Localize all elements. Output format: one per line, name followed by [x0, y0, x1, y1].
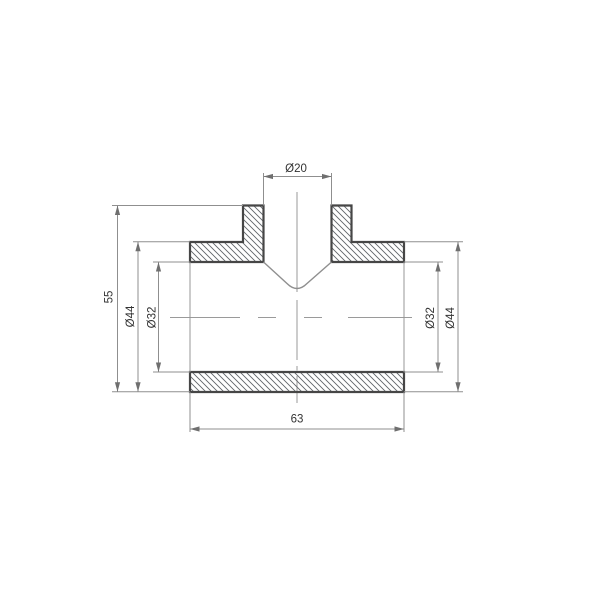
dim-label-body-length: 63	[291, 414, 304, 426]
arrow-down-icon	[135, 382, 140, 392]
right-top-wall-section	[332, 206, 405, 263]
extension-line-set	[112, 173, 463, 432]
arrow-down-icon	[115, 382, 120, 392]
arrow-down-icon	[435, 363, 440, 373]
arrow-left-icon	[264, 174, 274, 179]
arrow-up-icon	[156, 262, 161, 272]
extension-lines	[112, 173, 463, 432]
dim-label-branch-bore: Ø20	[285, 163, 307, 175]
arrow-down-icon	[455, 382, 460, 392]
arrow-up-icon	[435, 262, 440, 272]
dim-label-inner-diameter-left: Ø32	[147, 307, 159, 329]
arrow-down-icon	[156, 363, 161, 373]
arrow-up-icon	[135, 242, 140, 252]
technical-drawing-canvas: Ø20 55 Ø44 Ø32 Ø32 Ø44 63	[0, 0, 600, 600]
arrow-left-icon	[190, 426, 200, 431]
left-top-wall-section	[190, 206, 264, 263]
arrow-right-icon	[395, 426, 405, 431]
arrow-up-icon	[455, 242, 460, 252]
arrow-right-icon	[322, 174, 332, 179]
arrow-up-icon	[115, 206, 120, 216]
dim-label-inner-diameter-right: Ø32	[425, 307, 437, 329]
bottom-wall-section	[190, 372, 404, 392]
dim-label-body-height: 55	[104, 291, 116, 304]
dim-label-outer-diameter-left: Ø44	[125, 305, 137, 327]
dim-label-outer-diameter-right: Ø44	[445, 307, 457, 329]
